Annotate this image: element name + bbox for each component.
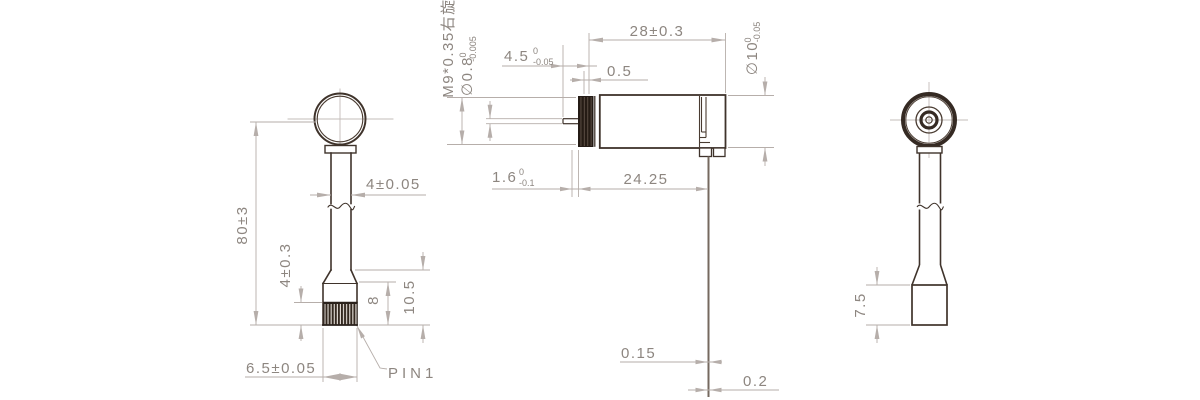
left-collar (325, 146, 356, 154)
dim-knurl-height: 4±0.3 (277, 243, 294, 288)
dim-terminal-tip-thickness: 0.2 (743, 373, 768, 390)
technical-drawing-canvas: 80±3 4±0.05 4±0.3 8 10.5 6.5±0.05 PIN1 (0, 0, 1200, 400)
right-view-dimensions (866, 267, 910, 343)
motor-body (600, 95, 726, 148)
pin1-label: PIN1 (388, 365, 437, 382)
dim-thread-spec: M9*0.35右旋 (440, 0, 457, 98)
left-side-view (288, 89, 393, 325)
drawing-svg: 80±3 4±0.05 4±0.3 8 10.5 6.5±0.05 PIN1 (0, 0, 1200, 400)
dim-shaft-length-sub: -0.05 (533, 57, 554, 67)
dim-lower-height: 10.5 (401, 279, 418, 314)
dim-base-width: 6.5±0.05 (246, 360, 316, 377)
dim-case-length: 24.25 (623, 171, 668, 188)
dim-body-diameter: ∅10 (744, 41, 761, 75)
dim-front-gap: 0.5 (607, 63, 632, 80)
right-collar (917, 147, 942, 154)
right-front-view (890, 82, 968, 325)
dim-base-height: 7.5 (852, 292, 869, 317)
middle-view-dimensions (447, 33, 779, 392)
left-knurl (324, 304, 357, 326)
dim-shaft-diameter-sup: 0 (458, 52, 468, 57)
dim-body-length: 28±0.3 (630, 23, 685, 40)
terminal-tab-2 (714, 148, 726, 157)
dim-shaft-width: 4±0.05 (366, 176, 421, 193)
dim-overall-height: 80±3 (234, 205, 251, 244)
right-base-block (912, 285, 947, 325)
dim-body-diameter-sub: -0.05 (752, 22, 762, 43)
threaded-nut (579, 97, 594, 147)
dim-terminal-thickness: 0.15 (621, 345, 656, 362)
dim-grip-height: 8 (365, 295, 382, 305)
terminal-tab-1 (700, 148, 712, 157)
dim-nut-thickness: 1.6 (492, 169, 517, 186)
right-break-line (917, 203, 944, 210)
motor-shaft (563, 119, 579, 124)
left-view-dimensions (245, 122, 430, 382)
dim-nut-thickness-sup: 0 (519, 167, 524, 177)
dim-shaft-length-sup: 0 (533, 46, 538, 56)
right-shaft (912, 153, 947, 285)
dim-shaft-diameter-sub: -0.005 (468, 36, 478, 62)
left-shaft (323, 153, 357, 325)
dim-shaft-length: 4.5 (504, 48, 529, 65)
dim-nut-thickness-sub: -0.1 (519, 178, 535, 188)
